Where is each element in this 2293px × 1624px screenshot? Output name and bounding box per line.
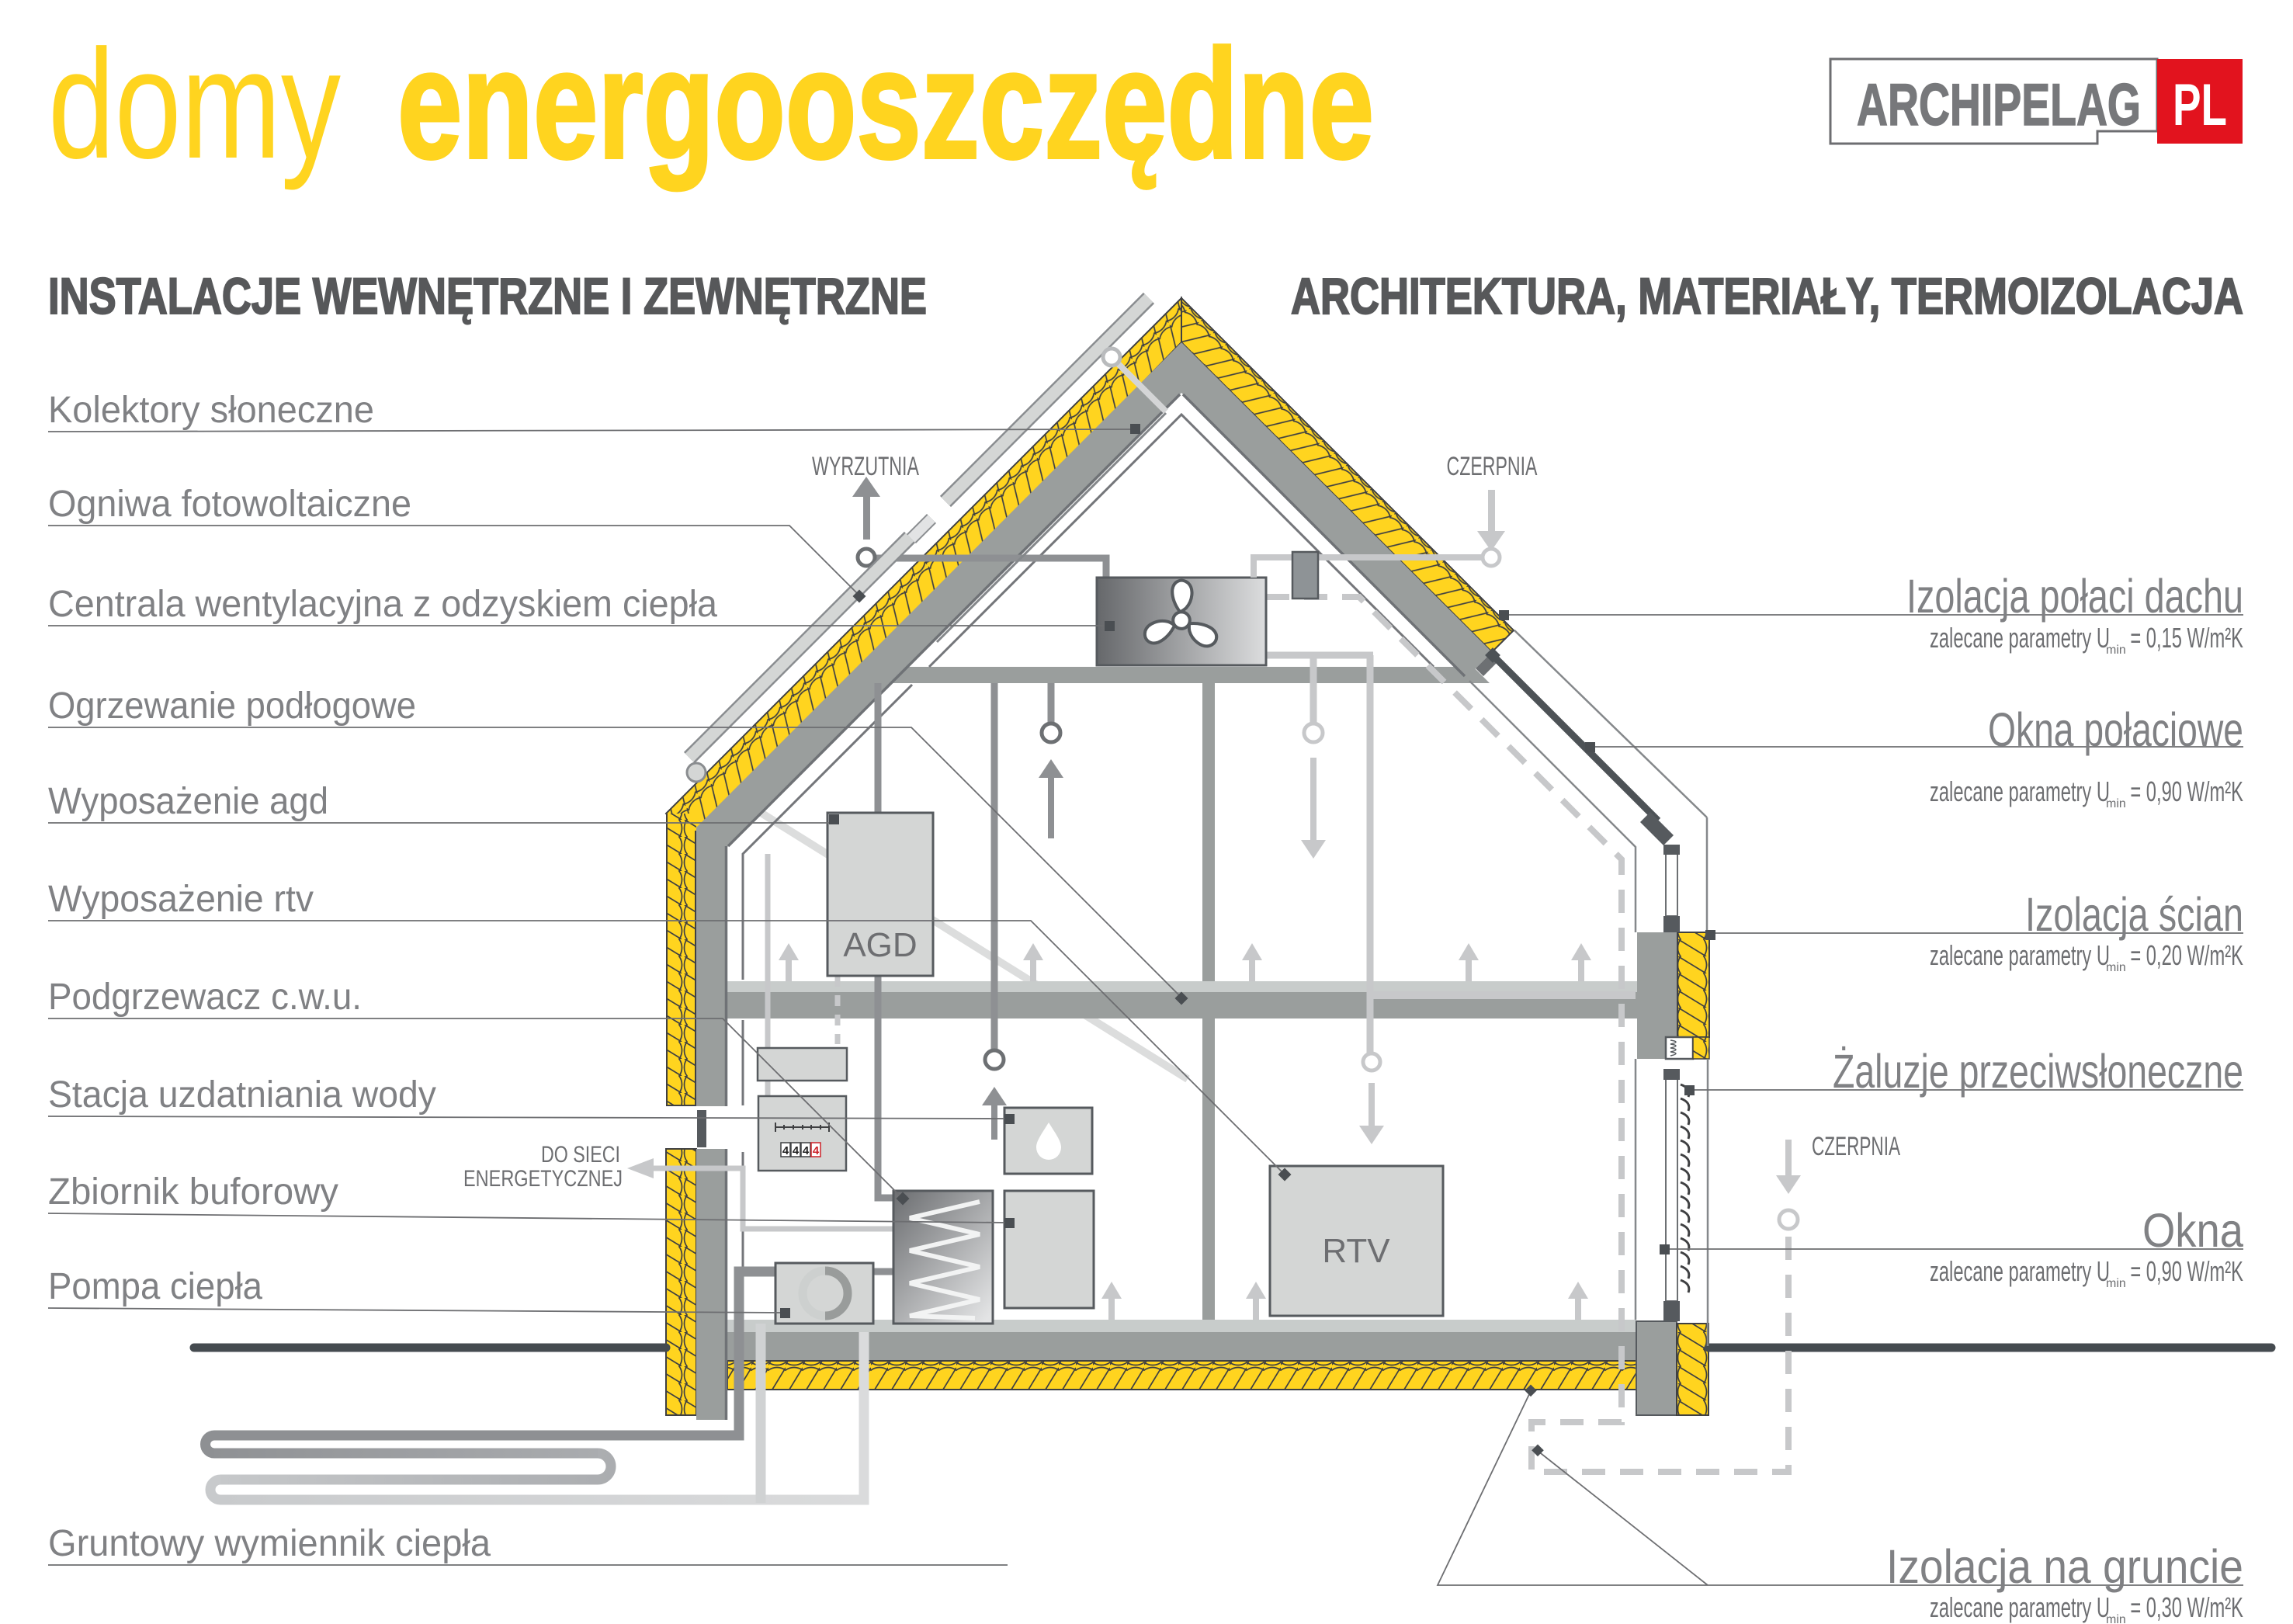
svg-text:zalecane parametry U = 0,20: zalecane parametry U = 0,20 W/m²K [1930,939,2243,971]
svg-text:CZERPNIA: CZERPNIA [1812,1132,1900,1161]
svg-text:min: min [2106,961,2126,974]
svg-text:Gruntowy wymiennik ciepła: Gruntowy wymiennik ciepła [48,1523,491,1564]
svg-text:ENERGETYCZNEJ: ENERGETYCZNEJ [463,1166,623,1192]
svg-text:Wyposażenie agd: Wyposażenie agd [48,781,328,822]
svg-text:4: 4 [793,1144,800,1157]
svg-text:INSTALACJE WEWNĘTRZNE I ZEWNĘT: INSTALACJE WEWNĘTRZNE I ZEWNĘTRZNE [48,267,927,324]
svg-text:4: 4 [813,1144,820,1157]
svg-text:DO SIECI: DO SIECI [541,1142,620,1168]
svg-text:4: 4 [782,1144,789,1157]
svg-text:4: 4 [803,1144,810,1157]
svg-text:Pompa ciepła: Pompa ciepła [48,1266,262,1307]
svg-text:min: min [2106,1277,2126,1290]
svg-text:AGD: AGD [843,926,917,964]
svg-text:Okna połaciowe: Okna połaciowe [1988,703,2243,756]
svg-text:PL: PL [2173,72,2227,138]
svg-text:Kolektory słoneczne: Kolektory słoneczne [48,390,374,431]
svg-text:WYRZUTNIA: WYRZUTNIA [812,452,919,481]
svg-text:Wyposażenie rtv: Wyposażenie rtv [48,879,314,920]
svg-text:Okna: Okna [2142,1204,2243,1257]
svg-text:domy: domy [48,18,341,191]
svg-text:Ogniwa fotowoltaiczne: Ogniwa fotowoltaiczne [48,484,411,525]
svg-text:Centrala wentylacyjna z odzysk: Centrala wentylacyjna z odzyskiem ciepła [48,584,717,625]
svg-text:Zbiornik buforowy: Zbiornik buforowy [48,1171,338,1213]
svg-text:min: min [2106,1613,2126,1624]
svg-text:Żaluzje przeciwsłoneczne: Żaluzje przeciwsłoneczne [1833,1045,2243,1098]
svg-text:ARCHITEKTURA, MATERIAŁY, TERMO: ARCHITEKTURA, MATERIAŁY, TERMOIZOLACJA [1291,267,2243,324]
svg-text:ARCHIPELAG: ARCHIPELAG [1857,72,2141,138]
svg-text:zalecane parametry U = 0,15: zalecane parametry U = 0,15 W/m²K [1930,622,2243,654]
svg-text:zalecane parametry U = 0,90: zalecane parametry U = 0,90 W/m²K [1930,1255,2243,1287]
svg-text:CZERPNIA: CZERPNIA [1447,452,1538,481]
svg-text:RTV: RTV [1322,1232,1390,1270]
svg-text:Izolacja połaci dachu: Izolacja połaci dachu [1906,570,2243,623]
svg-text:Stacja uzdatniania wody: Stacja uzdatniania wody [48,1074,436,1116]
svg-text:Podgrzewacz c.w.u.: Podgrzewacz c.w.u. [48,977,362,1018]
svg-text:Izolacja ścian: Izolacja ścian [2025,888,2243,941]
svg-text:Ogrzewanie podłogowe: Ogrzewanie podłogowe [48,685,416,727]
svg-text:min: min [2106,644,2126,657]
svg-text:min: min [2106,797,2126,810]
svg-text:energooszczędne: energooszczędne [397,18,1374,191]
svg-text:zalecane parametry U = 0,30: zalecane parametry U = 0,30 W/m²K [1930,1591,2243,1623]
svg-text:zalecane parametry U = 0,90: zalecane parametry U = 0,90 W/m²K [1930,776,2243,807]
svg-text:Izolacja na gruncie: Izolacja na gruncie [1886,1540,2243,1593]
